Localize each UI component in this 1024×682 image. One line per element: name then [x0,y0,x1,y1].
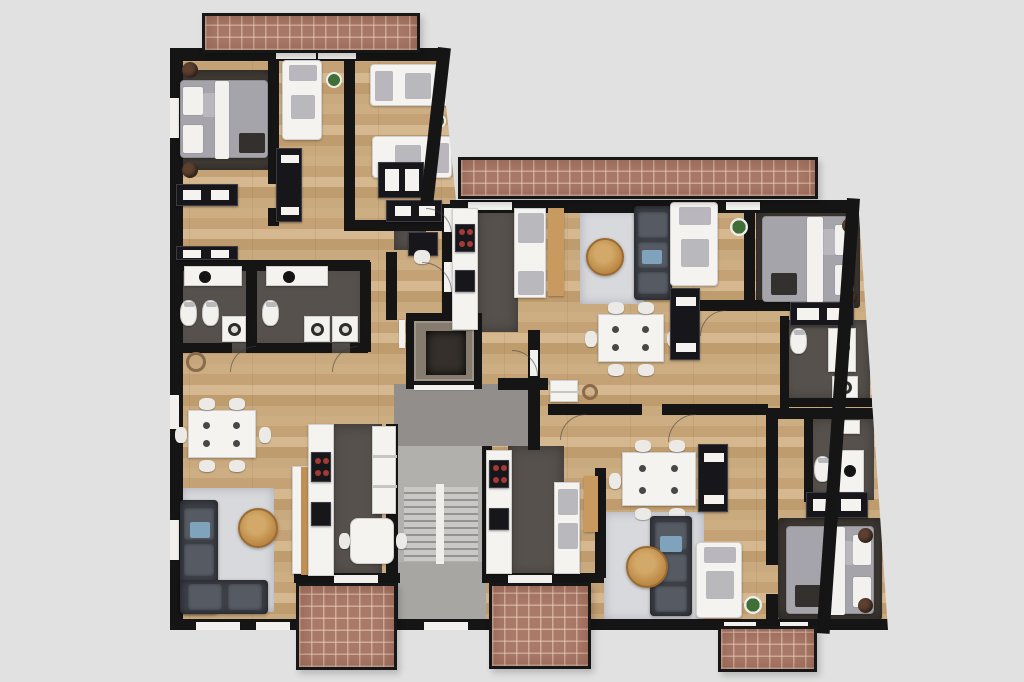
double-bed-apt1-detail [215,81,229,159]
cooktop-apt1-detail [323,470,329,476]
cabinet-column-apt2-detail [518,213,544,243]
sofa-apt2-detail [638,272,668,294]
building-footprint [0,0,1024,682]
sink-counter-bath-apt2 [828,328,856,372]
shelf-bath-apt3 [840,420,860,434]
wardrobe-apt3-detail [841,499,861,511]
floor-plan [0,0,1024,682]
toilet-bath-apt2-detail [794,330,805,335]
wall-bath-divider-apt1 [246,262,257,352]
cooktop-apt3-detail [493,477,499,483]
washer-bath2-a-detail [311,323,324,336]
cooktop-apt2-detail [459,229,465,235]
window-left-b [170,395,179,429]
cabinet-column-apt2 [514,208,546,298]
plant-apt1-right [432,114,446,128]
kitchen-sink-apt2 [455,270,475,292]
single-bed-apt1-r1-detail [405,73,431,99]
wall-entry-apt3 [528,404,540,450]
cabinet-column-apt3-detail [558,523,578,549]
wardrobe-apt1-hall-detail [385,169,399,191]
nightstand-apt1-a [182,62,198,78]
dining-table-apt2-detail [638,364,654,376]
wardrobe-apt1-mid-detail [281,155,299,163]
wardrobe-apt3-detail [813,499,833,511]
dining-table-apt2-detail [612,326,619,333]
shelf-pair-core-detail [551,391,579,393]
dining-table-apt3-detail [635,440,651,452]
dining-table-apt3-detail [635,508,651,520]
wall-master-left-apt3 [766,419,778,565]
balcony-door-apt3-a [724,622,756,630]
dining-table-apt2-detail [608,302,624,314]
kitchen-sink-apt1 [311,502,331,526]
toilet-bath2-detail [266,302,277,307]
basket-apt1 [186,352,206,372]
wardrobe-apt1-hall [378,162,424,198]
cooktop-apt2 [455,224,475,252]
wall-bath-bottom-b [246,343,332,353]
dresser-apt1-b-detail [211,250,229,258]
toilet-bath1-a-detail [184,302,195,307]
plant-apt1-mid [326,72,342,88]
sink-counter-bath2-detail [283,271,295,283]
balcony-door-apt2-b [726,202,760,210]
console-apt2 [670,288,700,360]
wall-bath-right-apt1 [360,262,371,352]
dining-table-apt1-detail [175,427,187,443]
wardrobe-apt1-mid [276,148,302,222]
wall-hall-apt1 [386,252,397,320]
entrance-door-stairwell [424,622,468,630]
single-bed-apt1-mid [282,60,322,140]
toilet-bath2 [262,300,279,326]
dining-table-apt2-detail [638,302,654,314]
coffee-table-apt1 [238,508,278,548]
sideboard-wood-apt3 [584,476,598,532]
wardrobe-apt2-detail [827,308,849,320]
dining-table-apt1-detail [259,427,271,443]
double-bed-apt1-detail [183,125,203,153]
wall-bath-bottom-a [170,343,232,353]
wardrobe-apt1-mid-detail [281,207,299,215]
dining-table-apt2-detail [585,331,597,347]
sideboard-apt1-entry-detail [395,206,411,216]
sideboard-wood-apt2 [548,208,564,296]
elevator-lobby-floor [394,384,534,446]
door-elevator-side [399,320,405,348]
nightstand-apt1-b [182,162,198,178]
balcony-door-apt3-kitchen [508,575,552,583]
wall-master-left-apt2 [744,200,755,310]
dining-table-apt1-detail [199,460,215,472]
elevator-sill [414,385,474,390]
toilet-bath1-b-detail [206,302,217,307]
washer-bath2-b-detail [339,323,352,336]
sink-counter-bath-apt3-detail [844,465,856,477]
cooktop-apt1 [311,452,331,482]
window-bottom-a [196,622,240,630]
dresser-apt1-a-detail [211,190,229,200]
double-bed-apt2-detail [807,217,823,303]
cooktop-apt2-detail [459,241,465,247]
dresser-apt1-b [176,246,238,260]
dining-table-apt1 [188,410,256,458]
washer-bath1 [222,316,246,342]
dining-table-apt2-detail [608,364,624,376]
cooktop-apt3 [489,460,509,488]
sofa-apt1-bottom [180,580,268,614]
console-apt3-detail [704,495,724,504]
sink-counter-bath-apt2-detail [837,341,850,354]
cooktop-apt3-detail [501,465,507,471]
toilet-bath-apt3 [814,456,831,482]
cooktop-apt1-detail [323,458,329,464]
double-bed-apt1 [180,80,268,158]
wardrobe-apt1-hall-detail [405,169,419,191]
console-apt2-detail [676,297,696,306]
single-bed-apt3-detail [704,547,736,563]
stair-landing-floor [394,562,486,620]
wall-bedroom2-3 [344,58,355,226]
basket-core [582,384,598,400]
toilet-bath1-b [202,300,219,326]
washer-bath2-b [332,316,358,342]
sofa-apt2 [634,206,672,300]
washer-bath2-a [304,316,330,342]
console-apt3-detail [704,453,724,462]
cabinet-column-apt2-detail [518,271,544,295]
coffee-table-apt2 [586,238,624,276]
wall-apt2-apt3-a [548,404,642,415]
dining-table-apt3-detail [639,487,646,494]
cabinet-column-apt3 [554,482,580,574]
nightstand-apt3-a [858,528,873,543]
dining-table-apt1-detail [233,440,240,447]
single-bed-apt1-r1 [370,64,450,106]
sofa-apt1-left-detail [190,522,210,538]
door-arc-apt3-b [668,414,696,442]
dining-table-apt2-detail [642,344,649,351]
single-bed-apt3 [696,542,742,618]
balcony-top-left [202,13,420,53]
wall-master-left-apt3b [766,594,778,632]
window-left-c [170,520,179,560]
dining-table-apt3-detail [609,473,621,489]
door-arc-apt3-a [560,414,586,440]
dresser-apt1-b-detail [183,250,201,258]
dresser-apt1-a [176,184,238,206]
stair-rail [436,484,444,564]
dining-table-apt3-detail [671,465,678,472]
single-bed-apt1-mid-detail [289,65,317,81]
sink-counter-bath1-detail [199,271,211,283]
dining-table-apt2 [598,314,664,362]
sofa-apt1-bottom-detail [228,584,262,610]
wall-bath-left-apt2 [780,316,789,408]
nightstand-apt3-b [858,598,873,613]
sink-counter-bath2 [266,266,328,286]
cooktop-apt3-detail [501,477,507,483]
balcony-door-apt1-a [276,50,316,59]
wall-lobby-top [498,378,548,390]
single-bed-apt1-r2-detail [431,143,449,173]
sofa-apt1-bottom-detail [188,584,222,610]
elevator-cab-detail [426,331,466,375]
sink-counter-bath-apt3 [834,450,864,496]
balcony-window-apt1 [318,50,356,59]
wardrobe-apt3 [806,492,868,518]
dining-table-apt2-detail [612,344,619,351]
single-bed-apt1-mid-detail [291,95,315,119]
wall-apt2-apt3-b [662,404,768,415]
coffee-table-apt3 [626,546,668,588]
kitchen-floor-apt2 [476,206,518,332]
dining-table-apt3-detail [639,465,646,472]
sofa-apt3-detail [655,586,687,612]
plant-apt3 [744,596,762,614]
dining-table-apt1-detail [233,422,240,429]
dresser-apt1-a-detail [183,190,201,200]
double-bed-apt1-detail [183,87,203,115]
dining-table-apt1-detail [199,398,215,410]
washer-bath-apt2 [832,376,858,398]
toilet-bath-apt3-detail [818,458,829,463]
nightstand-apt2-a [842,218,857,233]
dining-table-apt3 [622,452,696,506]
breakfast-table-apt1-detail [396,533,407,549]
daybed-apt2-detail [679,207,711,225]
shelf-pair-core [550,380,578,402]
wall-bath-left-apt3 [804,418,813,502]
cooktop-apt1-detail [315,458,321,464]
plant-apt2 [730,218,748,236]
wardrobe-apt2-detail [797,308,819,320]
kitchen-counter-apt1 [308,424,334,576]
balcony-bottom-right [718,626,817,672]
dining-table-apt3-detail [671,487,678,494]
sink-counter-bath1 [184,266,242,286]
dining-table-apt2-detail [642,326,649,333]
door-arc-apt2-corridor [700,310,726,336]
fridge-column-apt1-detail [373,455,397,458]
cooktop-apt2-detail [467,241,473,247]
cabinet-column-apt3-detail [558,489,578,515]
double-bed-apt2 [762,216,854,302]
kitchen-sink-apt3 [489,508,509,530]
breakfast-table-apt1-detail [339,533,350,549]
single-bed-apt1-r1-detail [375,71,393,101]
double-bed-apt1-detail [239,133,265,153]
window-left-a [170,98,179,138]
fridge-column-apt1 [372,426,396,514]
sofa-apt1-left-detail [184,544,214,576]
toilet-bath1-a [180,300,197,326]
daybed-apt2-detail [681,239,709,267]
double-bed-apt3-detail [795,585,821,607]
console-apt3 [698,444,728,512]
balcony-door-apt1-kitchen [334,575,378,583]
double-bed-apt2-detail [771,273,797,295]
balcony-door-apt3-b [780,622,808,630]
wall-apt2-apt3-c [766,408,876,419]
console-apt2-detail [676,343,696,352]
washer-bath1-detail [228,323,241,336]
cooktop-apt1-detail [315,470,321,476]
single-bed-apt3-detail [706,571,734,599]
double-bed-apt3-detail [829,527,845,615]
breakfast-table-apt1 [350,518,394,564]
toilet-bath-apt2 [790,328,807,354]
wall-bath-bottom-apt2 [780,398,872,407]
fridge-column-apt1-detail [373,485,397,488]
sofa-apt2-detail [642,250,662,264]
sofa-apt2-detail [638,212,668,238]
dining-table-apt1-detail [203,440,210,447]
dining-table-apt1-detail [203,422,210,429]
cooktop-apt2-detail [467,229,473,235]
daybed-apt2 [670,202,718,286]
dining-table-apt1-detail [229,398,245,410]
washer-bath-apt2-detail [839,381,852,394]
elevator-cab [414,321,474,381]
sofa-apt3-detail [660,536,682,552]
window-bottom-b [256,622,290,630]
wardrobe-apt2 [790,302,854,326]
cooktop-apt3-detail [493,465,499,471]
dining-table-apt1-detail [229,460,245,472]
balcony-top-right [458,157,818,199]
cabinet-strip-apt1 [292,466,308,574]
